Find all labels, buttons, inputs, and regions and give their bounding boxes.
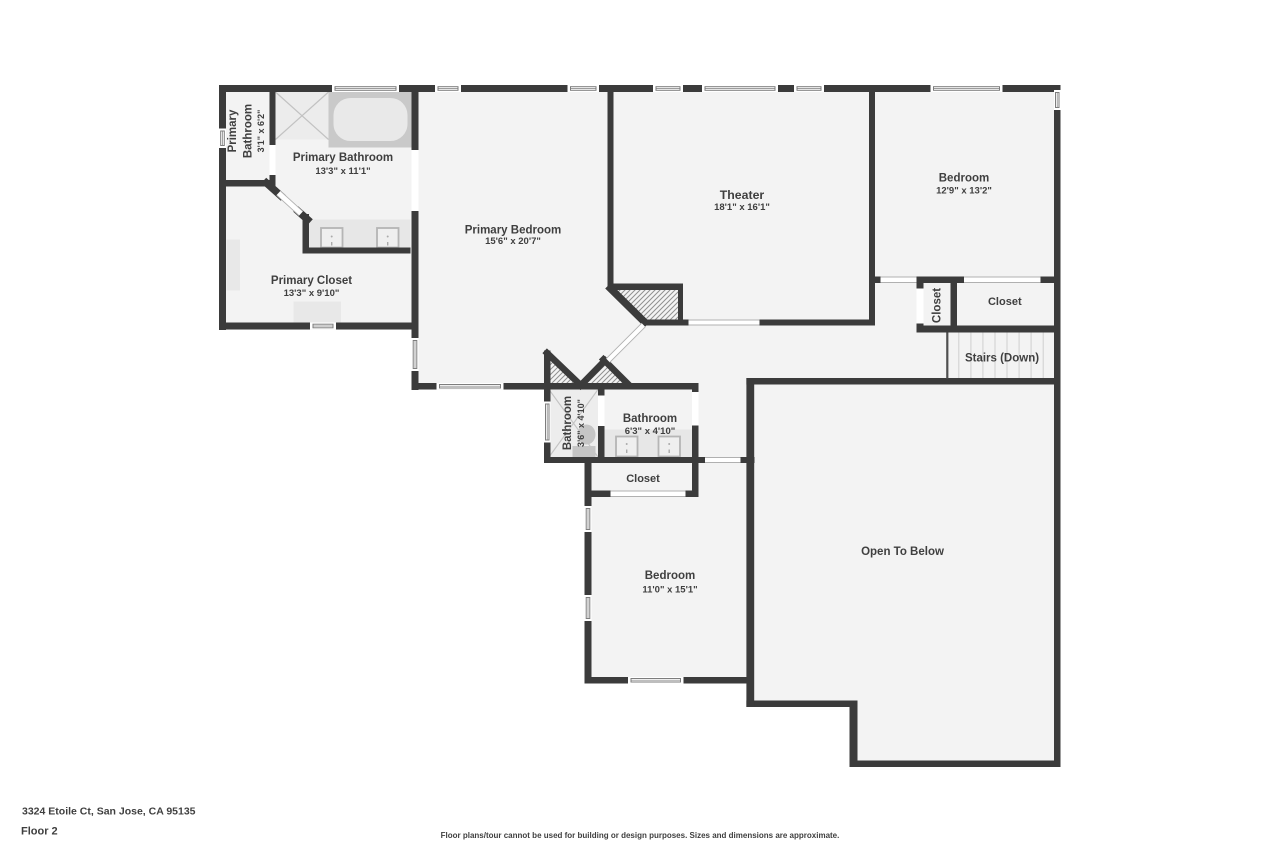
svg-text:11'0" x 15'1": 11'0" x 15'1" — [642, 584, 697, 595]
svg-text:Bathroom: Bathroom — [243, 104, 255, 158]
svg-text:3'1" x 6'2": 3'1" x 6'2" — [256, 110, 266, 153]
svg-text:13'3" x 11'1": 13'3" x 11'1" — [315, 166, 370, 177]
svg-text:Bathroom: Bathroom — [562, 396, 574, 450]
svg-text:Closet: Closet — [932, 288, 944, 323]
svg-text:Stairs (Down): Stairs (Down) — [965, 353, 1039, 365]
svg-text:Closet: Closet — [626, 473, 660, 485]
svg-text:Theater: Theater — [720, 188, 765, 202]
svg-text:Primary Bathroom: Primary Bathroom — [293, 152, 393, 164]
svg-text:Floor plans/tour cannot be use: Floor plans/tour cannot be used for buil… — [441, 831, 840, 840]
svg-text:12'9" x 13'2": 12'9" x 13'2" — [936, 185, 992, 196]
svg-text:Primary Closet: Primary Closet — [271, 275, 352, 287]
svg-text:Closet: Closet — [988, 296, 1022, 308]
svg-text:6'3" x 4'10": 6'3" x 4'10" — [625, 426, 676, 437]
svg-text:13'3" x 9'10": 13'3" x 9'10" — [284, 288, 340, 299]
svg-text:Bedroom: Bedroom — [645, 570, 695, 582]
svg-text:18'1" x 16'1": 18'1" x 16'1" — [714, 202, 770, 213]
svg-text:Open To Below: Open To Below — [861, 546, 944, 558]
svg-text:Primary: Primary — [227, 109, 239, 152]
svg-text:Floor 2: Floor 2 — [21, 826, 58, 838]
svg-text:3324 Etoile Ct, San Jose, CA 9: 3324 Etoile Ct, San Jose, CA 95135 — [22, 806, 196, 818]
svg-text:3'6" x 4'10": 3'6" x 4'10" — [576, 399, 586, 447]
svg-text:15'6" x 20'7": 15'6" x 20'7" — [485, 236, 541, 247]
svg-text:Primary Bedroom: Primary Bedroom — [465, 225, 562, 237]
svg-text:Bathroom: Bathroom — [623, 413, 677, 425]
svg-text:Bedroom: Bedroom — [939, 172, 989, 184]
